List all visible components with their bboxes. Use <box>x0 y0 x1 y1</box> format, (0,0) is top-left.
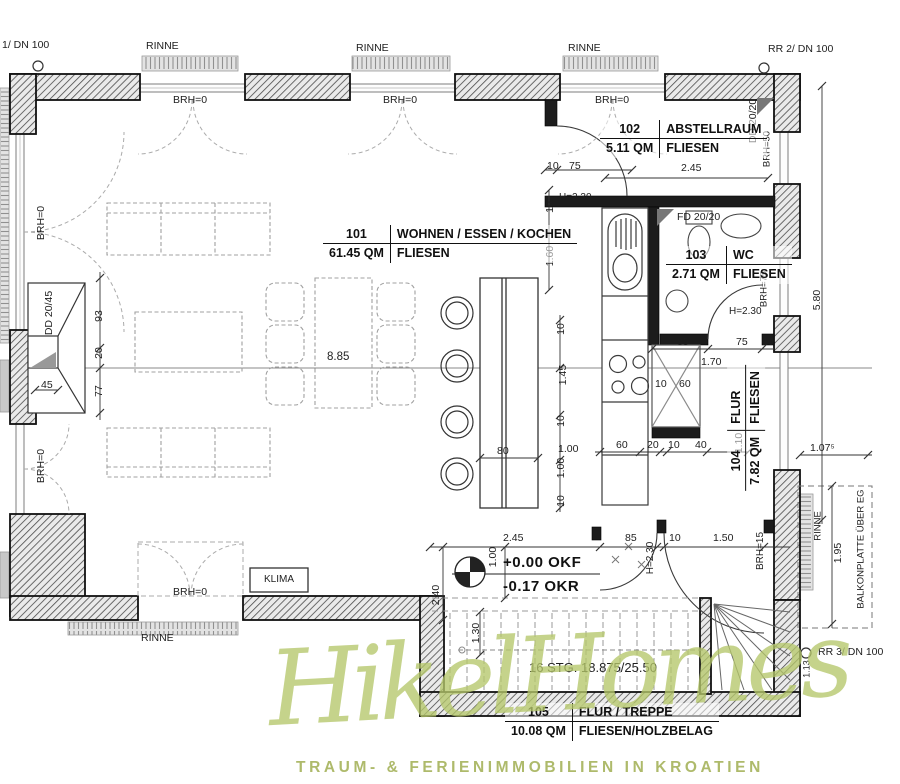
rinne-label: RINNE <box>568 43 601 54</box>
rinne-label: RINNE <box>813 511 823 541</box>
room-area: 10.08 QM <box>505 722 573 740</box>
dim-label: 60 <box>679 379 691 390</box>
dim-label: 10 <box>655 379 667 390</box>
room-number: 102 <box>600 120 660 139</box>
dim-label: 1.00 <box>556 458 567 478</box>
floorplan-drawing <box>0 0 900 784</box>
dim-label: 1.95 <box>833 543 844 563</box>
room-number: 105 <box>505 703 573 722</box>
bar-stools <box>441 297 473 490</box>
room-label-102: 102 ABSTELLRAUM 5.11 QM FLIESEN <box>600 120 767 158</box>
dim-label: 1.00 <box>488 547 499 567</box>
dim-label: 1.13 <box>803 660 812 678</box>
rinne-label: RINNE <box>146 41 179 52</box>
window-swings <box>24 100 667 596</box>
klima-label: KLIMA <box>264 575 294 585</box>
room-area: 61.45 QM <box>323 244 391 262</box>
room-name: FLUR <box>727 365 746 430</box>
dim-label: 5.80 <box>812 290 823 310</box>
dim-label: 75 <box>569 161 581 172</box>
height-label: H=2.30 <box>646 542 656 575</box>
kitchen-counter <box>602 208 649 568</box>
dim-label: 80 <box>497 446 509 457</box>
dim-label: 2.45 <box>681 163 701 174</box>
rinne-label: RINNE <box>141 633 174 644</box>
dim-label: 75 <box>736 337 748 348</box>
dim-label: 85 <box>677 337 689 348</box>
room-label-101: 101 WOHNEN / ESSEN / KOCHEN 61.45 QM FLI… <box>323 225 577 263</box>
room-name: FLUR / TREPPE <box>573 703 719 722</box>
level-raw-floor: -0.17 OKR <box>503 579 579 594</box>
brh-label: BRH=0 <box>173 95 207 106</box>
drain-label-3: RR 3/ DN 100 <box>818 647 883 658</box>
dim-label: 1.45 <box>558 365 569 385</box>
room-name: WOHNEN / ESSEN / KOCHEN <box>391 225 577 244</box>
room-name: WC <box>727 246 792 265</box>
room-floor: FLIESEN <box>391 244 577 262</box>
brh-label: BRH=15 <box>756 532 766 570</box>
stairs <box>432 598 790 690</box>
room-number: 101 <box>323 225 391 244</box>
dd-label: DD 20/45 <box>44 291 55 335</box>
dim-label: 20 <box>647 440 659 451</box>
dining-set <box>266 278 415 408</box>
dim-label: 10 <box>556 323 567 335</box>
room-name: ABSTELLRAUM <box>660 120 767 139</box>
dim-label: 10 <box>545 201 556 213</box>
dim-label: 85 <box>625 533 637 544</box>
dim-label: 10 <box>762 337 774 348</box>
dim-label: 40 <box>695 440 707 451</box>
dim-label: 10 <box>669 533 681 544</box>
room-number: 104 <box>727 430 746 491</box>
height-label: H=2.30 <box>559 193 592 203</box>
height-label: H=2.30 <box>729 307 762 317</box>
stair-treads <box>444 612 700 690</box>
drain-label-2: RR 2/ DN 100 <box>768 44 833 55</box>
dim-label: 77 <box>94 385 105 397</box>
level-finished-floor: +0.00 OKF <box>503 555 581 570</box>
dim-label: 1.70 <box>701 357 721 368</box>
brh-label: BRH=0 <box>173 587 207 598</box>
rinne-label: RINNE <box>356 43 389 54</box>
dim-label: 45 <box>41 380 53 391</box>
brh-label: BRH=0 <box>36 449 47 483</box>
dim-label: 93 <box>94 310 105 322</box>
fd-symbol <box>657 209 674 226</box>
brh-label: BRH=0 <box>595 95 629 106</box>
dim-label: 2.40 <box>431 585 442 605</box>
room-floor: FLIESEN <box>727 265 792 283</box>
room-area: 7.82 QM <box>747 430 765 491</box>
room-label-103: 103 WC 2.71 QM FLIESEN <box>666 246 792 284</box>
dim-label: 1.50 <box>713 533 733 544</box>
room-label-105: 105 FLUR / TREPPE 10.08 QM FLIESEN/HOLZB… <box>505 703 719 741</box>
stair-note: 16 STG. 18.875/25.50 <box>529 661 657 674</box>
dim-label: 10 <box>547 161 559 172</box>
kitchen-island <box>441 278 538 508</box>
brh-label: BRH=0 <box>36 206 47 240</box>
room-label-104: 104 FLUR 7.82 QM FLIESEN <box>727 365 765 491</box>
dim-label: 1.00 <box>558 444 578 455</box>
room-area: 2.71 QM <box>666 265 727 283</box>
brh-label: BRH=0 <box>383 95 417 106</box>
room-area: 5.11 QM <box>600 139 660 157</box>
balkonplatte-label: BALKONPLATTE ÜBER EG <box>856 489 866 608</box>
drain-label-1: 1/ DN 100 <box>2 40 49 51</box>
room-floor: FLIESEN <box>660 139 767 157</box>
room-floor: FLIESEN/HOLZBELAG <box>573 722 719 740</box>
dim-label: 1.30 <box>471 623 482 643</box>
living-furniture <box>107 203 270 477</box>
room-floor: FLIESEN <box>747 365 765 430</box>
fireplace <box>28 283 85 413</box>
shutter-stubs <box>0 360 9 598</box>
dim-label: 1.07⁵ <box>810 443 835 454</box>
dim-label: 60 <box>616 440 628 451</box>
room-label-104-wrap: 104 FLUR 7.82 QM FLIESEN <box>727 365 765 491</box>
dim-label: 10 <box>556 415 567 427</box>
dim-label: 10 <box>668 440 680 451</box>
dim-label: 2.45 <box>503 533 523 544</box>
room-number: 103 <box>666 246 727 265</box>
floorplan-page: 1/ DN 100 RINNE RINNE RINNE RR 2/ DN 100… <box>0 0 900 784</box>
dim-label: 8.85 <box>327 352 349 364</box>
dim-label: 10 <box>556 495 567 507</box>
fd-label: FD 20/20 <box>677 212 720 223</box>
dim-label: 20 <box>94 347 105 359</box>
